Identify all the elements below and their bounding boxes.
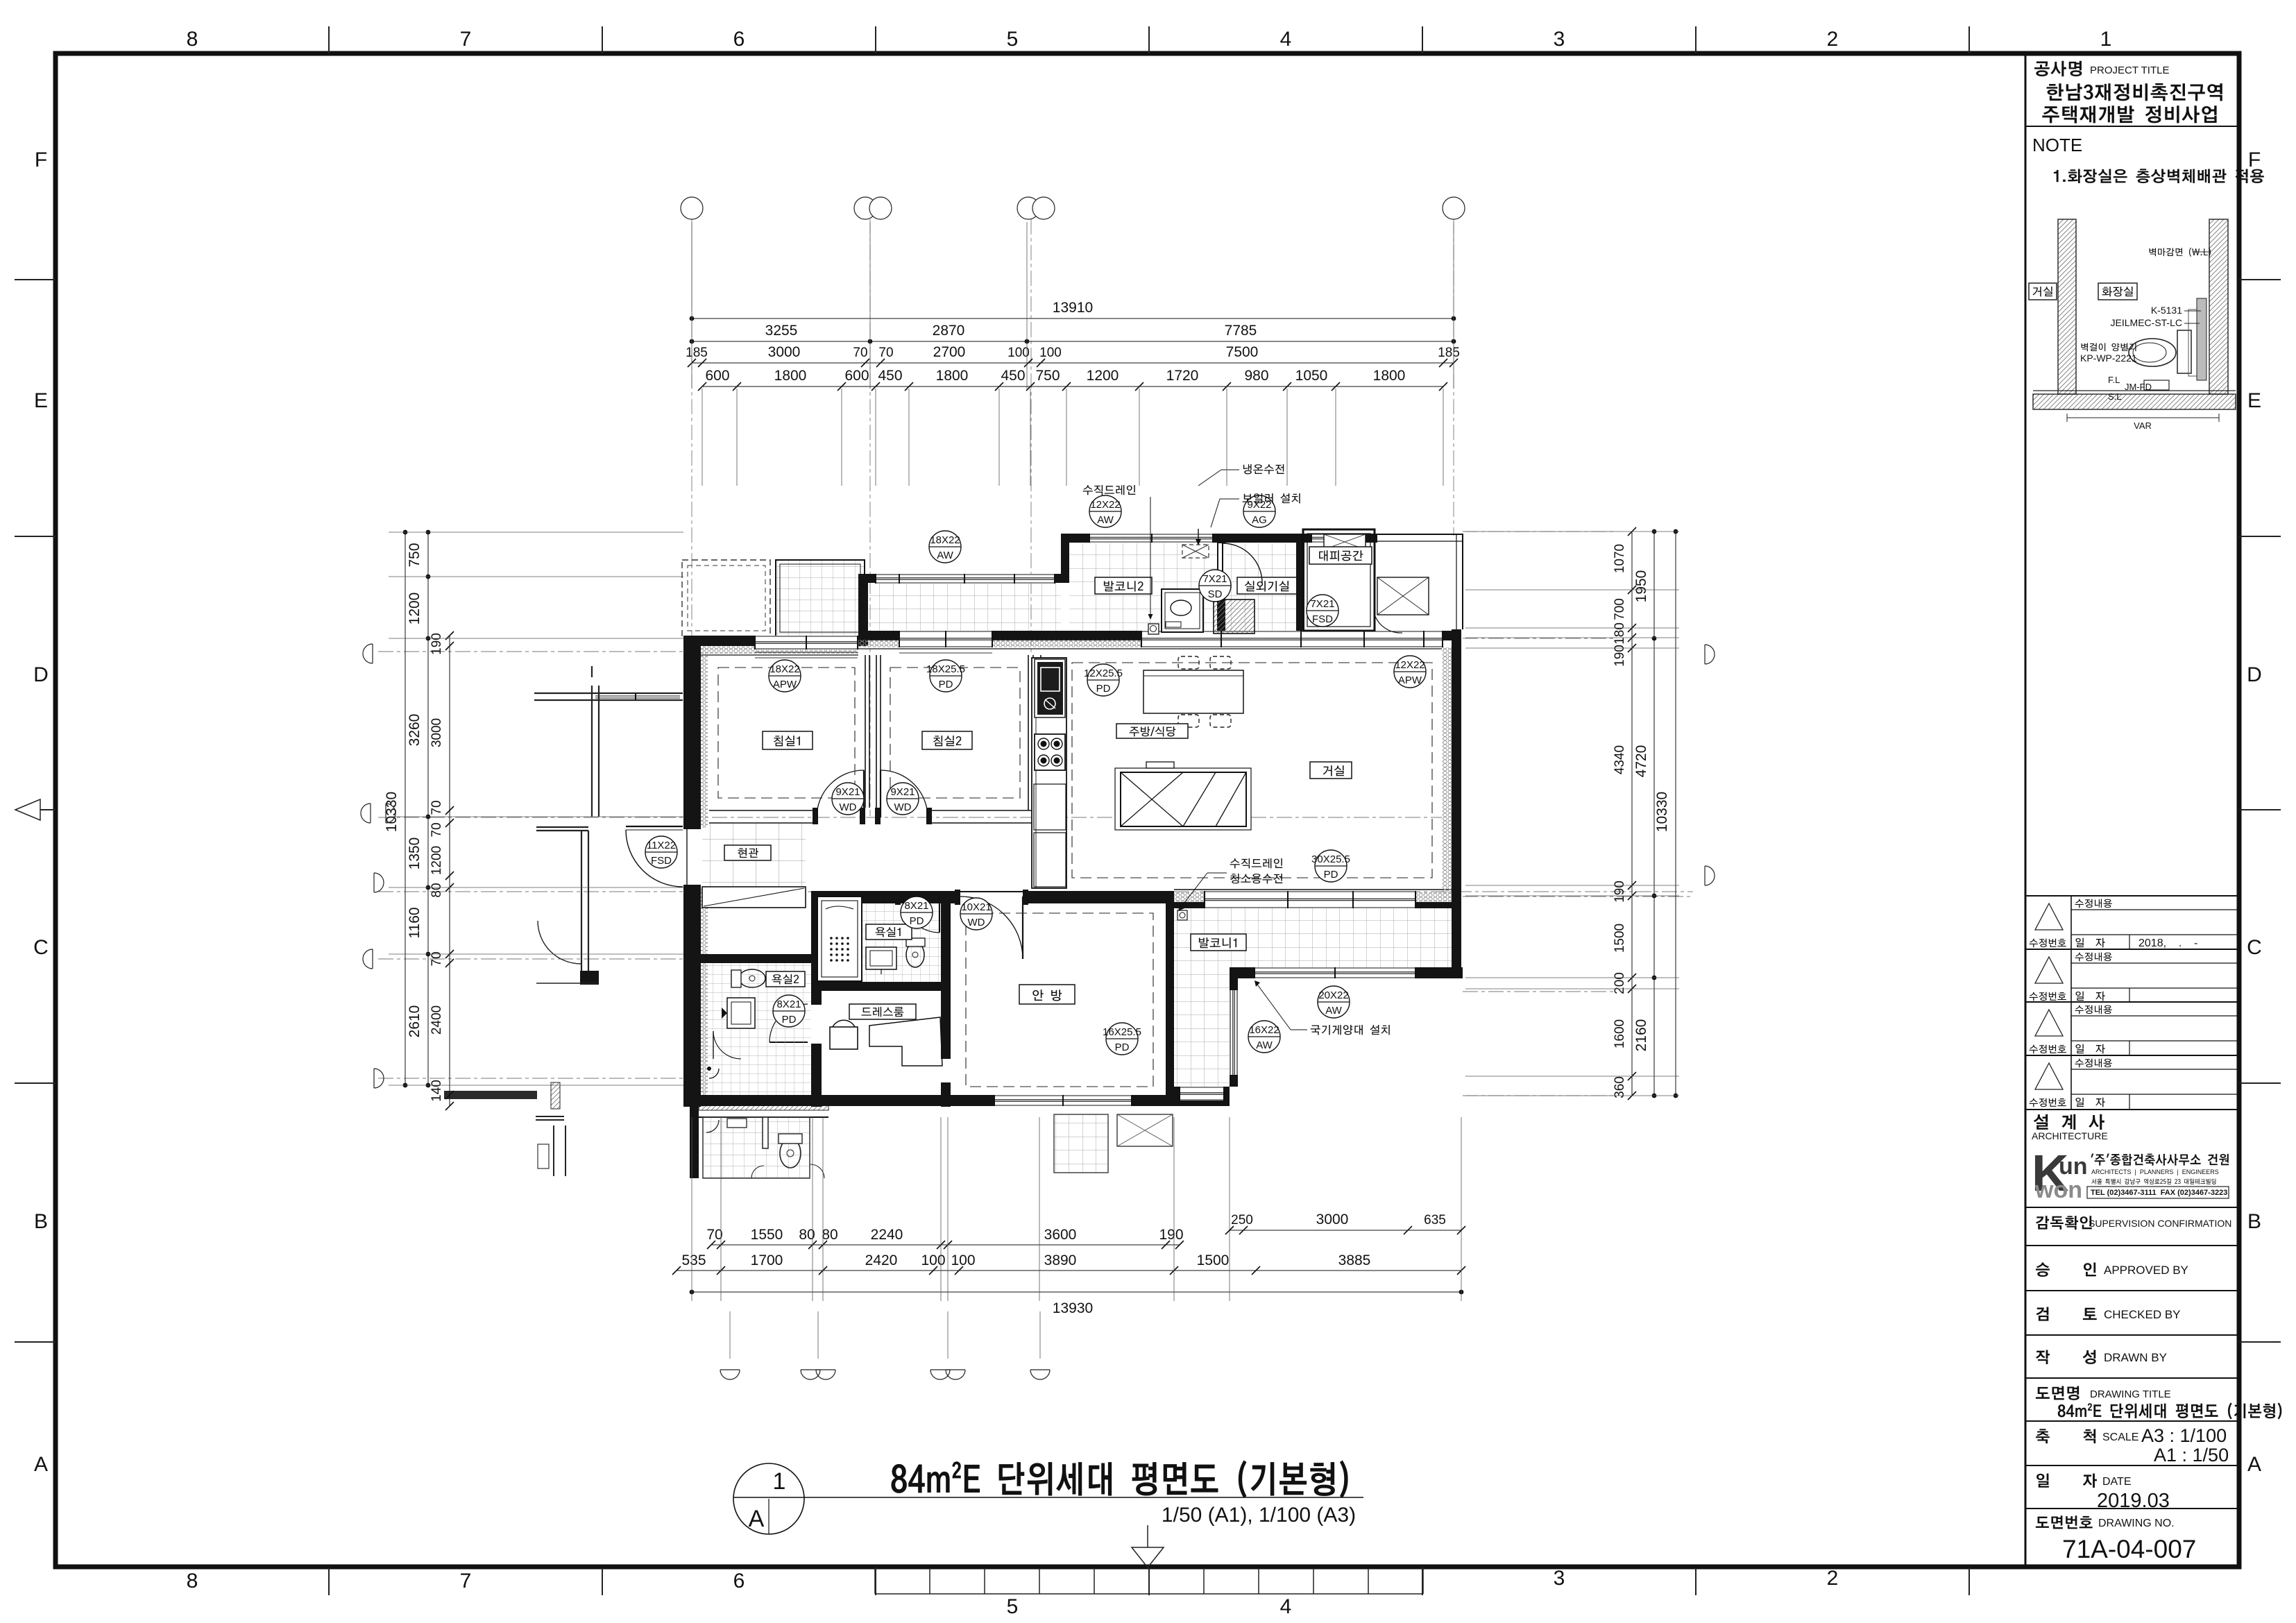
svg-text:2018, . -: 2018, . - <box>2138 937 2197 949</box>
svg-text:3: 3 <box>1554 28 1565 51</box>
svg-text:12X22: 12X22 <box>1090 499 1120 511</box>
svg-text:7X21: 7X21 <box>1310 598 1334 610</box>
svg-text:70: 70 <box>853 346 867 360</box>
svg-text:PROJECT TITLE: PROJECT TITLE <box>2090 65 2169 76</box>
svg-text:K-5131: K-5131 <box>2151 305 2182 316</box>
svg-text:DRAWING NO.: DRAWING NO. <box>2098 1518 2175 1529</box>
svg-text:1800: 1800 <box>774 368 807 384</box>
svg-text:VAR: VAR <box>2134 420 2152 431</box>
svg-text:18X22: 18X22 <box>769 663 799 675</box>
svg-text:16X22: 16X22 <box>1249 1024 1279 1036</box>
svg-text:250: 250 <box>1231 1213 1253 1227</box>
svg-text:8: 8 <box>187 28 198 51</box>
svg-text:13910: 13910 <box>1053 300 1093 316</box>
svg-text:PD: PD <box>1115 1042 1130 1053</box>
svg-text:2420: 2420 <box>865 1252 898 1268</box>
svg-text:100: 100 <box>951 1252 975 1268</box>
svg-text:KP-WP-2221: KP-WP-2221 <box>2080 352 2137 364</box>
svg-text:APW: APW <box>773 679 797 690</box>
svg-text:WD: WD <box>840 801 857 813</box>
svg-text:100: 100 <box>921 1252 945 1268</box>
svg-text:450: 450 <box>878 368 902 384</box>
svg-text:2400: 2400 <box>430 1005 444 1035</box>
svg-text:2240: 2240 <box>871 1227 903 1243</box>
svg-text:750: 750 <box>1035 368 1060 384</box>
svg-text:AW: AW <box>937 550 953 561</box>
svg-text:70: 70 <box>706 1227 722 1243</box>
svg-text:F: F <box>2248 148 2261 171</box>
svg-text:won: won <box>2034 1177 2082 1203</box>
svg-text:B: B <box>34 1210 48 1233</box>
svg-text:1500: 1500 <box>1197 1252 1230 1268</box>
svg-text:A: A <box>749 1506 765 1532</box>
svg-text:E: E <box>2247 389 2261 412</box>
svg-text:CHECKED BY: CHECKED BY <box>2104 1308 2181 1321</box>
svg-text:PD: PD <box>910 915 924 927</box>
svg-text:16X25.5: 16X25.5 <box>1103 1026 1141 1038</box>
svg-text:PD: PD <box>782 1014 797 1026</box>
svg-text:C: C <box>2247 936 2262 959</box>
svg-text:FSD: FSD <box>651 855 672 867</box>
svg-text:1350: 1350 <box>407 838 423 870</box>
svg-text:WD: WD <box>894 801 912 813</box>
svg-text:1: 1 <box>2100 28 2112 51</box>
svg-text:AW: AW <box>1325 1005 1342 1017</box>
svg-text:535: 535 <box>681 1252 706 1268</box>
svg-text:6: 6 <box>733 1570 745 1592</box>
svg-text:190: 190 <box>430 633 444 655</box>
svg-text:2610: 2610 <box>407 1005 423 1038</box>
svg-text:3000: 3000 <box>1316 1212 1349 1227</box>
svg-text:3260: 3260 <box>407 714 423 747</box>
svg-text:2700: 2700 <box>933 344 966 360</box>
svg-text:3890: 3890 <box>1044 1252 1077 1268</box>
svg-text:5: 5 <box>1007 28 1019 51</box>
svg-text:7785: 7785 <box>1225 323 1257 339</box>
svg-text:TEL (02)3467-3111 FAX (02)346: TEL (02)3467-3111 FAX (02)3467-3223 <box>2091 1189 2227 1197</box>
svg-text:4720: 4720 <box>1633 745 1649 778</box>
svg-text:1720: 1720 <box>1166 368 1199 384</box>
svg-text:DRAWING TITLE: DRAWING TITLE <box>2090 1388 2171 1400</box>
svg-text:190: 190 <box>1159 1227 1183 1243</box>
svg-text:635: 635 <box>1424 1213 1446 1227</box>
svg-text:1: 1 <box>773 1468 786 1495</box>
svg-text:30X25.5: 30X25.5 <box>1311 853 1350 865</box>
svg-text:13930: 13930 <box>1053 1300 1093 1316</box>
svg-text:80: 80 <box>430 883 444 897</box>
svg-text:un: un <box>2059 1153 2088 1180</box>
svg-text:SCALE: SCALE <box>2102 1431 2138 1443</box>
svg-text:ARCHITECTURE: ARCHITECTURE <box>2032 1130 2108 1141</box>
svg-text:1200: 1200 <box>407 593 423 625</box>
svg-text:2870: 2870 <box>933 323 965 339</box>
svg-text:600: 600 <box>705 368 729 384</box>
svg-text:185: 185 <box>1438 346 1460 360</box>
svg-text:AW: AW <box>1256 1039 1273 1051</box>
svg-text:7X21: 7X21 <box>1202 573 1227 585</box>
svg-text:3000: 3000 <box>768 344 801 360</box>
svg-text:70: 70 <box>878 346 893 360</box>
svg-text:6: 6 <box>733 28 745 51</box>
svg-text:70: 70 <box>430 822 444 837</box>
svg-text:PD: PD <box>939 679 953 690</box>
svg-text:71A-04-007: 71A-04-007 <box>2062 1535 2196 1563</box>
svg-text:2: 2 <box>1827 1567 1839 1590</box>
svg-text:1200: 1200 <box>430 846 444 875</box>
svg-text:20X22: 20X22 <box>1318 989 1348 1001</box>
svg-text:PD: PD <box>1096 683 1111 695</box>
svg-text:DRAWN BY: DRAWN BY <box>2104 1351 2167 1364</box>
svg-text:8X21: 8X21 <box>776 999 801 1010</box>
svg-text:PD: PD <box>1324 869 1338 881</box>
svg-text:100: 100 <box>1007 346 1030 360</box>
svg-text:3885: 3885 <box>1338 1252 1371 1268</box>
svg-text:3000: 3000 <box>430 718 444 747</box>
svg-text:12X25.5: 12X25.5 <box>1084 668 1123 679</box>
svg-text:2: 2 <box>1827 28 1839 51</box>
svg-text:190: 190 <box>1613 881 1627 903</box>
svg-text:1/50 (A1), 1/100 (A3): 1/50 (A1), 1/100 (A3) <box>1162 1504 1356 1527</box>
svg-text:10330: 10330 <box>1654 792 1670 832</box>
svg-text:S.L: S.L <box>2108 391 2122 402</box>
svg-text:A: A <box>34 1453 48 1476</box>
svg-text:AW: AW <box>1097 514 1114 526</box>
svg-text:APW: APW <box>1398 674 1422 686</box>
svg-text:750: 750 <box>407 543 423 567</box>
svg-text:1950: 1950 <box>1633 570 1649 603</box>
svg-text:4340: 4340 <box>1613 745 1627 774</box>
svg-text:9X21: 9X21 <box>890 786 915 798</box>
svg-text:11X22: 11X22 <box>647 840 676 851</box>
svg-text:1050: 1050 <box>1295 368 1328 384</box>
svg-text:2160: 2160 <box>1633 1019 1649 1052</box>
svg-text:SUPERVISION CONFIRMATION: SUPERVISION CONFIRMATION <box>2089 1218 2231 1229</box>
svg-text:A3 : 1/100: A3 : 1/100 <box>2141 1425 2227 1446</box>
svg-text:A1 : 1/50: A1 : 1/50 <box>2154 1445 2229 1465</box>
svg-text:D: D <box>33 663 49 686</box>
svg-text:7500: 7500 <box>1226 344 1259 360</box>
svg-text:4: 4 <box>1280 1595 1292 1618</box>
svg-text:185: 185 <box>686 346 708 360</box>
svg-text:F: F <box>35 148 47 171</box>
svg-text:980: 980 <box>1244 368 1268 384</box>
svg-text:12X22: 12X22 <box>1395 659 1425 671</box>
svg-text:1700: 1700 <box>751 1252 783 1268</box>
svg-text:1200: 1200 <box>1087 368 1119 384</box>
svg-text:NOTE: NOTE <box>2032 135 2082 155</box>
svg-text:5: 5 <box>1007 1595 1019 1618</box>
svg-text:18X22: 18X22 <box>930 534 960 546</box>
svg-text:JEILMEC-ST-LC: JEILMEC-ST-LC <box>2111 317 2182 328</box>
svg-text:WD: WD <box>968 917 985 928</box>
svg-text:450: 450 <box>1001 368 1025 384</box>
svg-text:3: 3 <box>1554 1567 1565 1590</box>
svg-text:1800: 1800 <box>1373 368 1406 384</box>
svg-text:7: 7 <box>460 1570 472 1592</box>
svg-text:A: A <box>2247 1453 2261 1476</box>
svg-text:1600: 1600 <box>1613 1019 1627 1048</box>
svg-text:SD: SD <box>1208 588 1223 600</box>
svg-text:80: 80 <box>822 1227 837 1243</box>
svg-text:200: 200 <box>1613 972 1627 994</box>
svg-text:1160: 1160 <box>407 907 423 938</box>
svg-text:1070: 1070 <box>1613 544 1627 573</box>
svg-text:9X21: 9X21 <box>835 786 860 798</box>
svg-text:10X21: 10X21 <box>961 901 991 913</box>
svg-text:1500: 1500 <box>1613 924 1627 953</box>
svg-text:E: E <box>34 389 48 412</box>
svg-text:70: 70 <box>430 800 444 815</box>
svg-text:3600: 3600 <box>1044 1227 1077 1243</box>
svg-text:700: 700 <box>1613 598 1627 620</box>
svg-text:7: 7 <box>460 28 472 51</box>
svg-text:B: B <box>2247 1210 2261 1233</box>
svg-text:8X21: 8X21 <box>904 900 928 912</box>
svg-text:JM-FD: JM-FD <box>2125 382 2152 392</box>
svg-text:140: 140 <box>430 1080 444 1102</box>
svg-text:F.L: F.L <box>2108 375 2120 385</box>
svg-text:2019.03: 2019.03 <box>2097 1490 2170 1512</box>
svg-text:1550: 1550 <box>751 1227 783 1243</box>
svg-text:C: C <box>33 936 49 959</box>
svg-text:APPROVED BY: APPROVED BY <box>2104 1264 2188 1277</box>
svg-text:360: 360 <box>1613 1076 1627 1098</box>
svg-text:100: 100 <box>1039 346 1062 360</box>
svg-text:8: 8 <box>187 1570 198 1592</box>
svg-text:18X25.5: 18X25.5 <box>926 663 965 675</box>
svg-text:ARCHITECTS | PLANNERS | EN: ARCHITECTS | PLANNERS | ENGINEERS <box>2091 1169 2219 1175</box>
svg-text:180: 180 <box>1613 622 1627 645</box>
svg-text:600: 600 <box>844 368 869 384</box>
svg-text:FSD: FSD <box>1312 613 1333 625</box>
svg-text:DATE: DATE <box>2102 1476 2131 1488</box>
svg-text:AG: AG <box>1252 514 1267 526</box>
svg-text:3255: 3255 <box>765 323 798 339</box>
svg-text:1800: 1800 <box>936 368 969 384</box>
svg-text:4: 4 <box>1280 28 1292 51</box>
svg-text:D: D <box>2247 663 2262 686</box>
